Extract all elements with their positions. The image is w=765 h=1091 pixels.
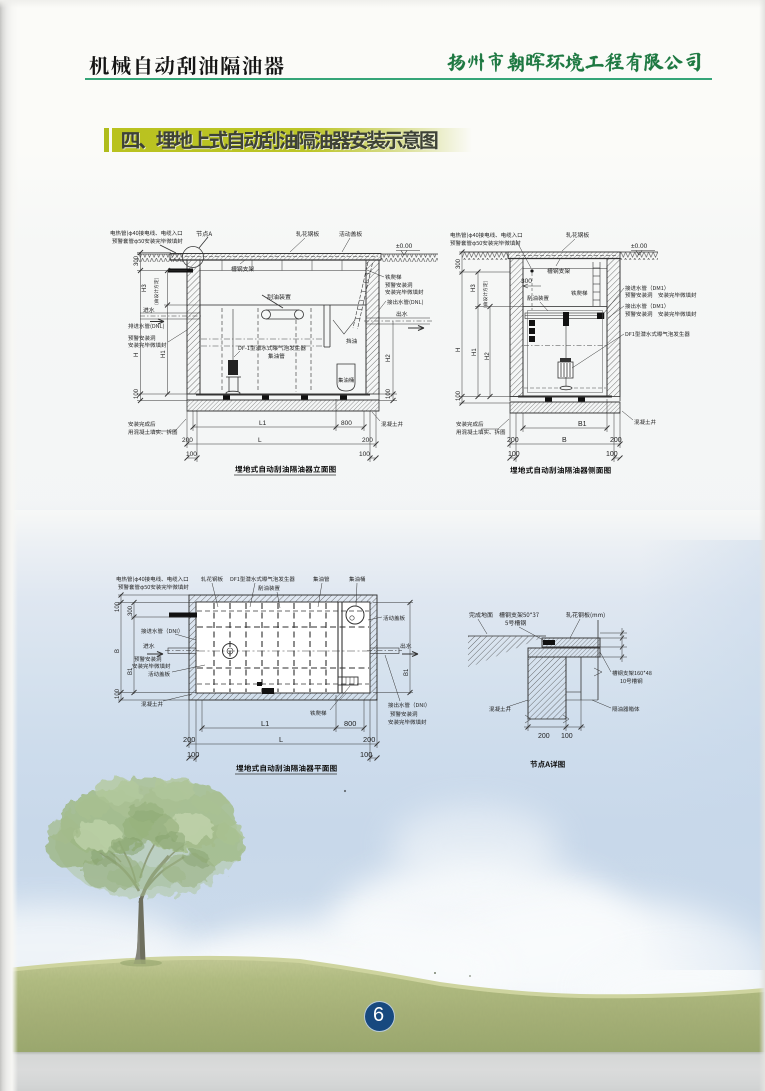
svg-text:H2: H2 bbox=[386, 354, 392, 362]
svg-text:100: 100 bbox=[359, 451, 370, 458]
svg-text:100: 100 bbox=[186, 451, 197, 458]
svg-text:800: 800 bbox=[341, 420, 352, 427]
svg-text:H: H bbox=[456, 348, 462, 352]
svg-text:200: 200 bbox=[610, 437, 622, 444]
svg-text:±0.00: ±0.00 bbox=[631, 243, 648, 250]
svg-text:100: 100 bbox=[115, 601, 121, 612]
svg-text:100: 100 bbox=[360, 750, 372, 759]
svg-text:H1: H1 bbox=[472, 348, 478, 356]
svg-text:B: B bbox=[115, 649, 121, 653]
svg-text:300: 300 bbox=[134, 255, 140, 266]
svg-text:200: 200 bbox=[538, 733, 550, 740]
svg-text:±0.00: ±0.00 bbox=[396, 243, 413, 250]
svg-text:300: 300 bbox=[128, 605, 134, 616]
svg-text:200: 200 bbox=[183, 735, 195, 744]
svg-text:H3: H3 bbox=[142, 284, 148, 292]
svg-text:100: 100 bbox=[187, 750, 199, 759]
svg-text:B1: B1 bbox=[128, 667, 134, 675]
svg-text:H: H bbox=[134, 353, 140, 357]
svg-text:100: 100 bbox=[386, 388, 392, 399]
svg-text:H1: H1 bbox=[161, 350, 167, 358]
svg-text:200: 200 bbox=[182, 437, 193, 444]
svg-text:200: 200 bbox=[363, 735, 375, 744]
svg-text:B1: B1 bbox=[578, 421, 587, 428]
svg-text:200: 200 bbox=[362, 437, 373, 444]
svg-text:L: L bbox=[279, 735, 283, 744]
svg-text:100: 100 bbox=[134, 388, 140, 399]
svg-text:100: 100 bbox=[508, 451, 520, 458]
svg-text:100: 100 bbox=[115, 688, 121, 699]
svg-text:300: 300 bbox=[456, 258, 462, 269]
svg-text:B1: B1 bbox=[404, 668, 410, 676]
svg-text:L: L bbox=[258, 437, 262, 444]
svg-text:L1: L1 bbox=[261, 719, 269, 728]
svg-text:100: 100 bbox=[456, 390, 462, 401]
svg-text:200: 200 bbox=[507, 437, 519, 444]
svg-text:100: 100 bbox=[561, 733, 573, 740]
svg-text:800: 800 bbox=[344, 719, 356, 728]
svg-text:300: 300 bbox=[521, 278, 532, 285]
svg-text:L1: L1 bbox=[259, 420, 267, 427]
svg-text:H3: H3 bbox=[471, 284, 477, 292]
svg-text:H2: H2 bbox=[485, 352, 491, 360]
svg-text:100: 100 bbox=[606, 451, 618, 458]
svg-text:B: B bbox=[562, 437, 567, 444]
